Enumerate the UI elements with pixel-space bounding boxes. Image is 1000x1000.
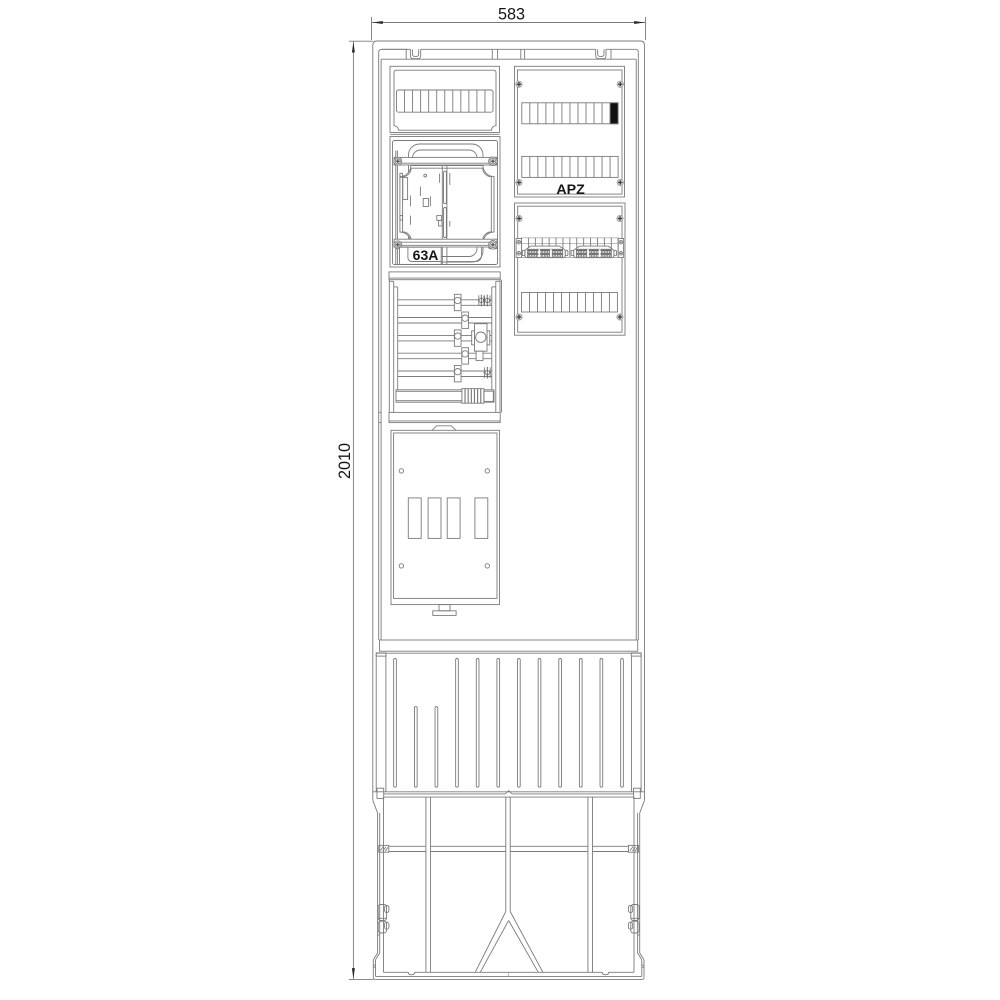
- svg-text:63A: 63A: [413, 247, 439, 263]
- svg-text:583: 583: [498, 5, 525, 23]
- svg-text:2010: 2010: [336, 443, 354, 479]
- svg-text:APZ: APZ: [556, 182, 585, 198]
